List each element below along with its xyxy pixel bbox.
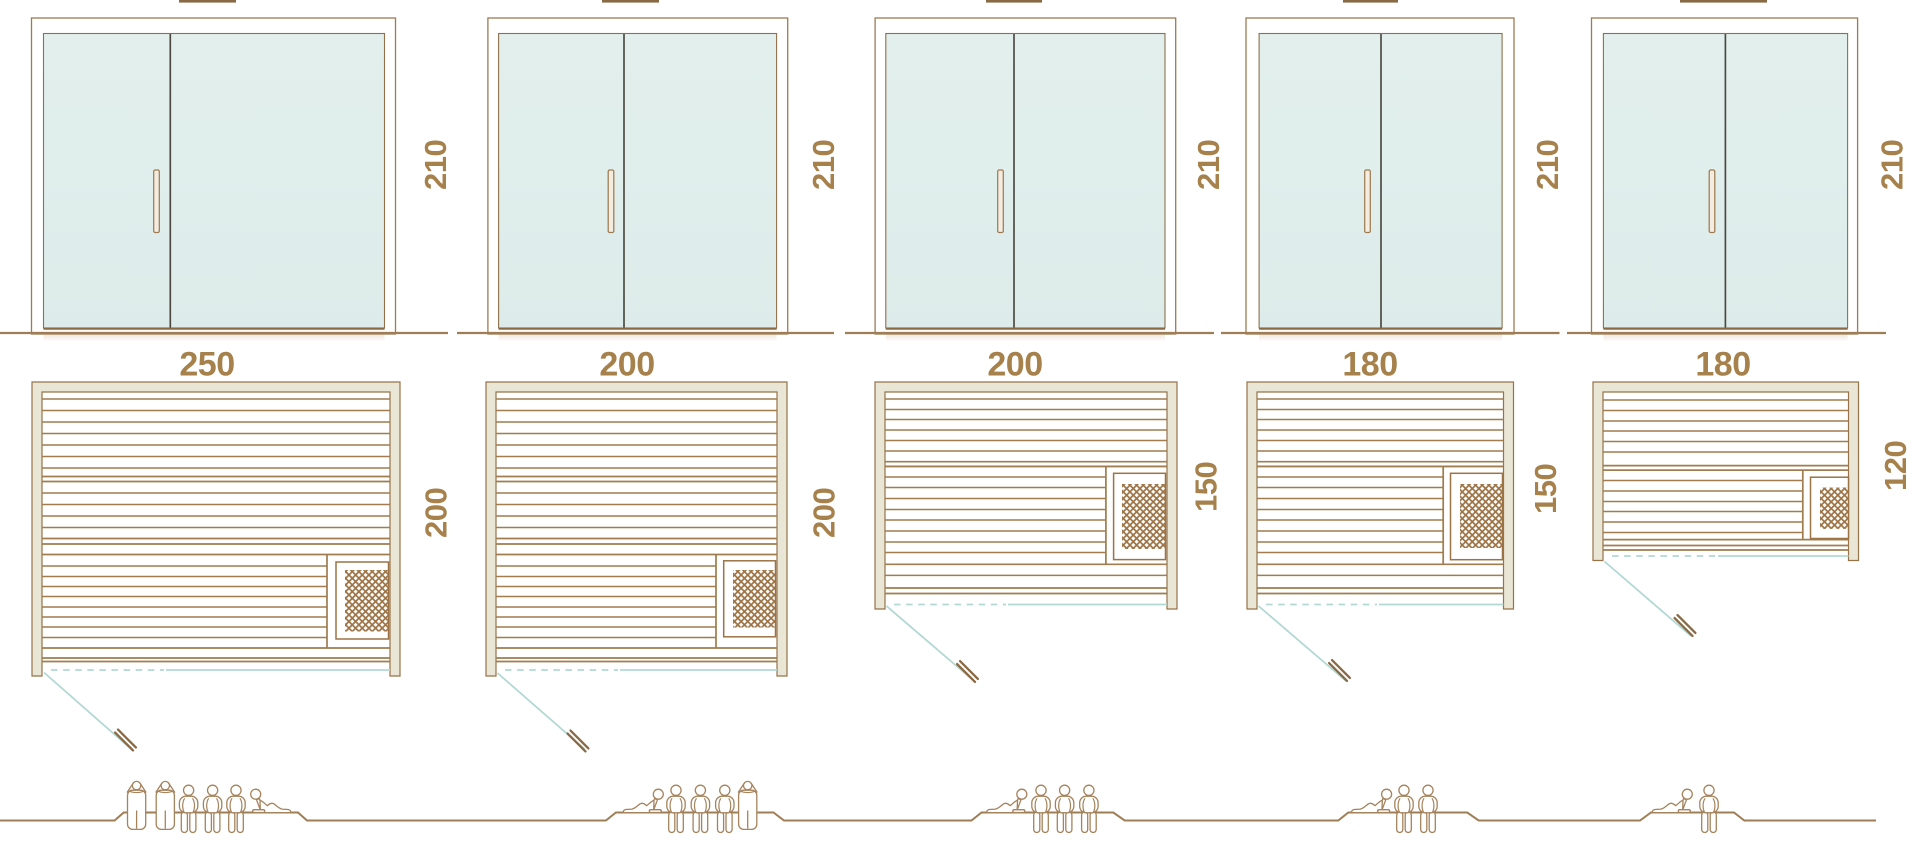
svg-text:180: 180 — [1342, 346, 1397, 384]
svg-text:150: 150 — [1528, 464, 1563, 514]
svg-text:200: 200 — [599, 346, 654, 384]
svg-text:180: 180 — [1695, 346, 1750, 384]
svg-text:200: 200 — [987, 346, 1042, 384]
svg-text:210: 210 — [1530, 140, 1565, 190]
svg-text:210: 210 — [1875, 140, 1910, 190]
svg-text:200: 200 — [807, 488, 842, 538]
svg-text:150: 150 — [1189, 462, 1224, 512]
svg-text:250: 250 — [179, 346, 234, 384]
svg-text:120: 120 — [1878, 441, 1913, 491]
svg-text:200: 200 — [419, 488, 454, 538]
svg-text:210: 210 — [806, 140, 841, 190]
svg-text:210: 210 — [418, 140, 453, 190]
svg-text:210: 210 — [1191, 140, 1226, 190]
